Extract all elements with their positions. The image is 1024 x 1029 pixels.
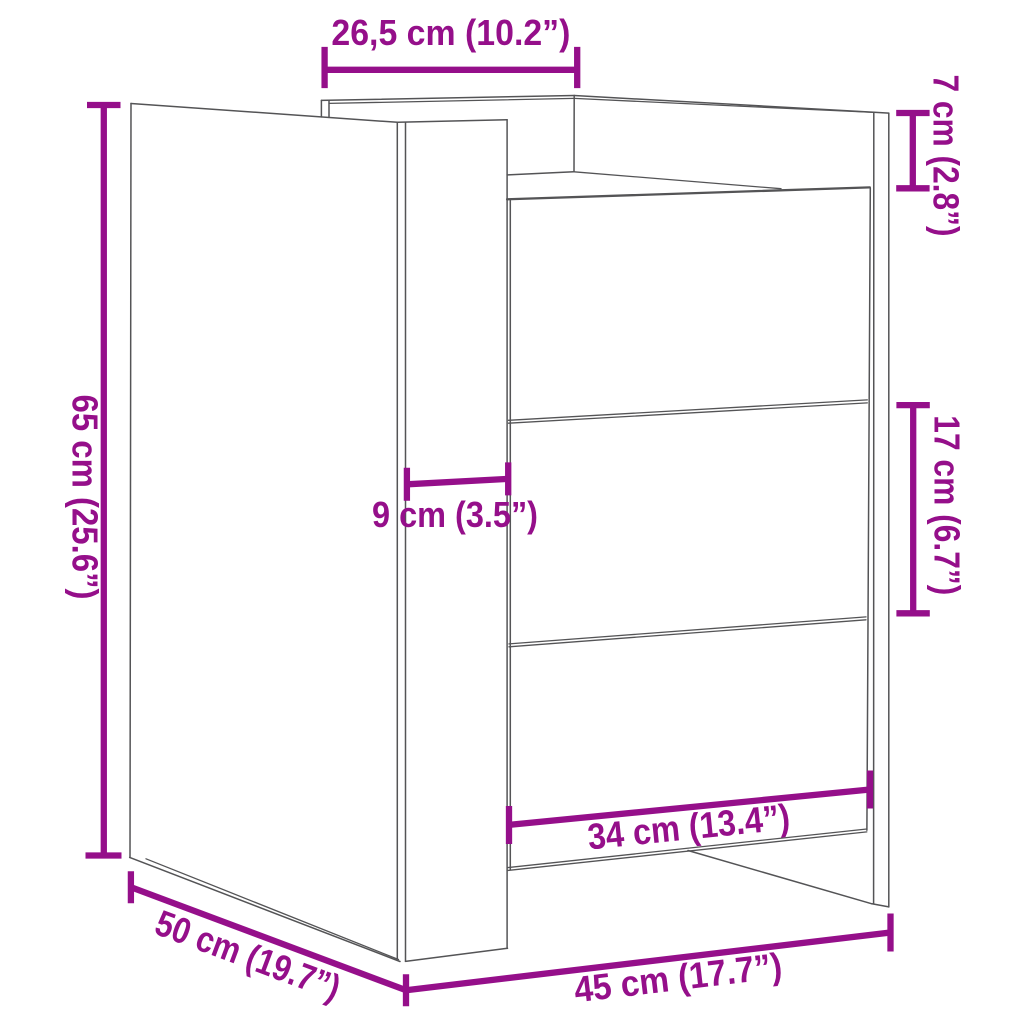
- svg-text:65 cm (25.6”): 65 cm (25.6”): [65, 395, 106, 600]
- svg-text:26,5 cm (10.2”): 26,5 cm (10.2”): [331, 12, 570, 53]
- svg-text:17 cm (6.7”): 17 cm (6.7”): [927, 415, 968, 595]
- svg-text:7 cm (2.8”): 7 cm (2.8”): [925, 75, 966, 237]
- svg-text:9 cm (3.5”): 9 cm (3.5”): [372, 494, 538, 535]
